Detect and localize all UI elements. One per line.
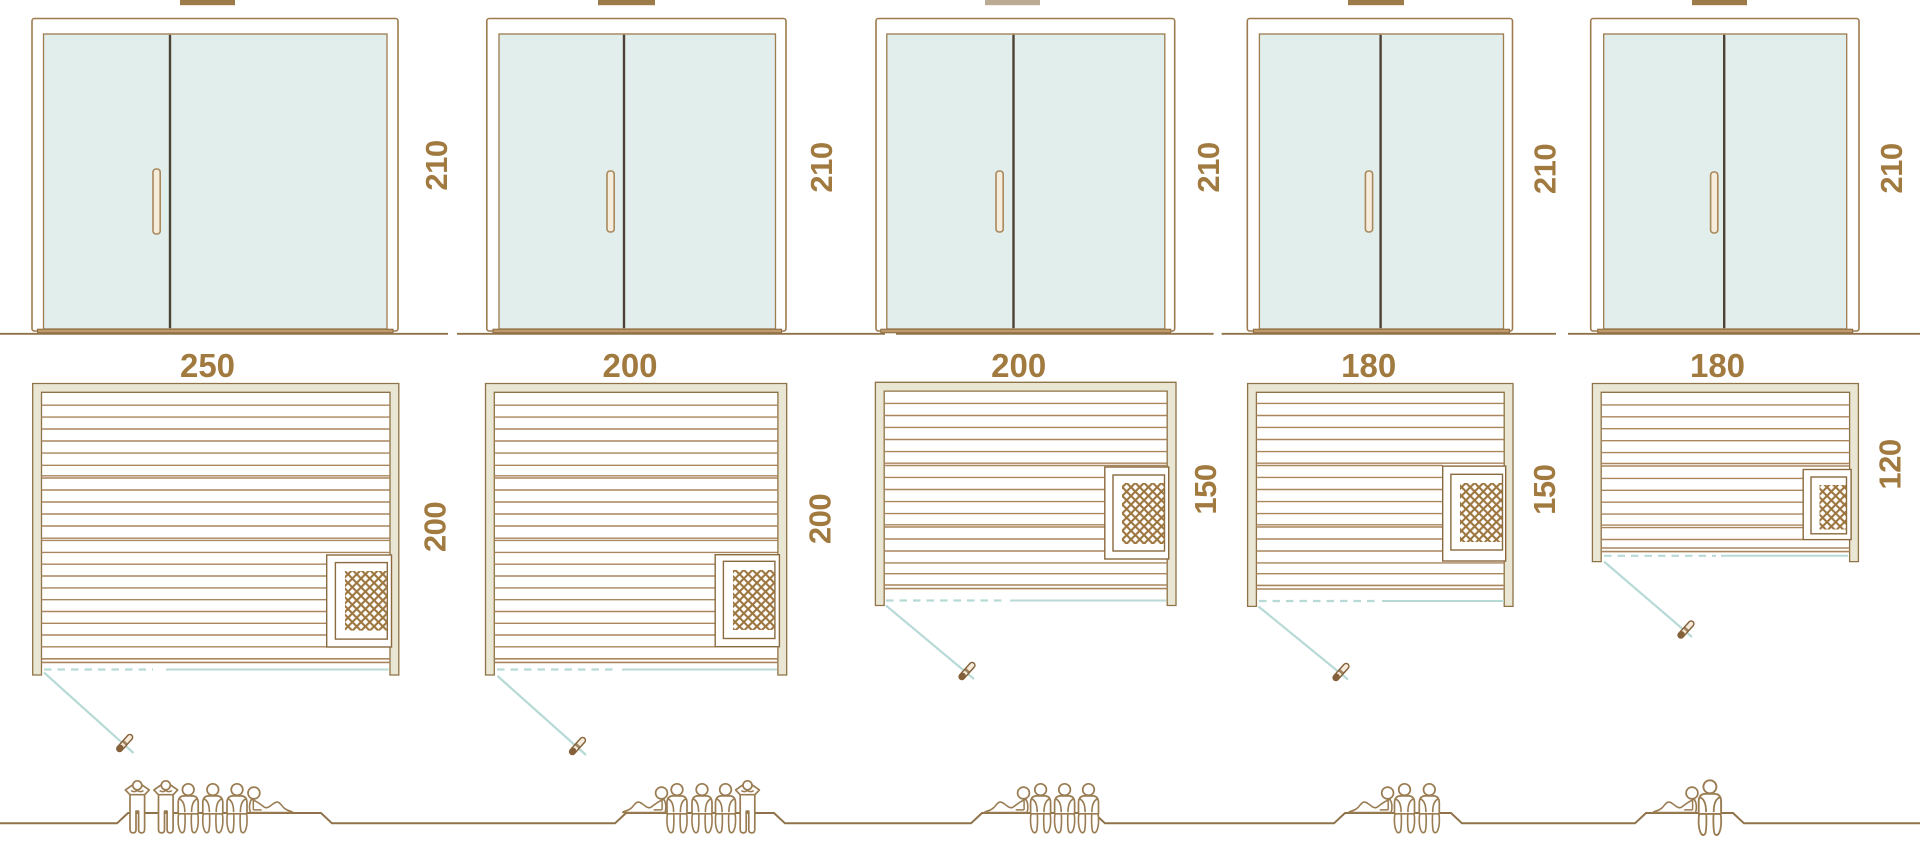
svg-text:180: 180 bbox=[1690, 347, 1745, 384]
svg-text:210: 210 bbox=[1874, 143, 1909, 193]
svg-text:210: 210 bbox=[1528, 144, 1563, 194]
svg-text:210: 210 bbox=[1191, 142, 1226, 192]
svg-text:200: 200 bbox=[991, 347, 1046, 384]
svg-text:150: 150 bbox=[1527, 465, 1562, 515]
svg-text:150: 150 bbox=[1188, 464, 1223, 514]
svg-text:180: 180 bbox=[1341, 347, 1396, 384]
svg-text:120: 120 bbox=[1873, 439, 1908, 489]
svg-text:250: 250 bbox=[180, 347, 235, 384]
svg-text:210: 210 bbox=[804, 142, 839, 192]
svg-text:200: 200 bbox=[418, 502, 453, 552]
svg-text:210: 210 bbox=[419, 140, 454, 190]
svg-text:200: 200 bbox=[803, 494, 838, 544]
svg-text:200: 200 bbox=[602, 347, 657, 384]
